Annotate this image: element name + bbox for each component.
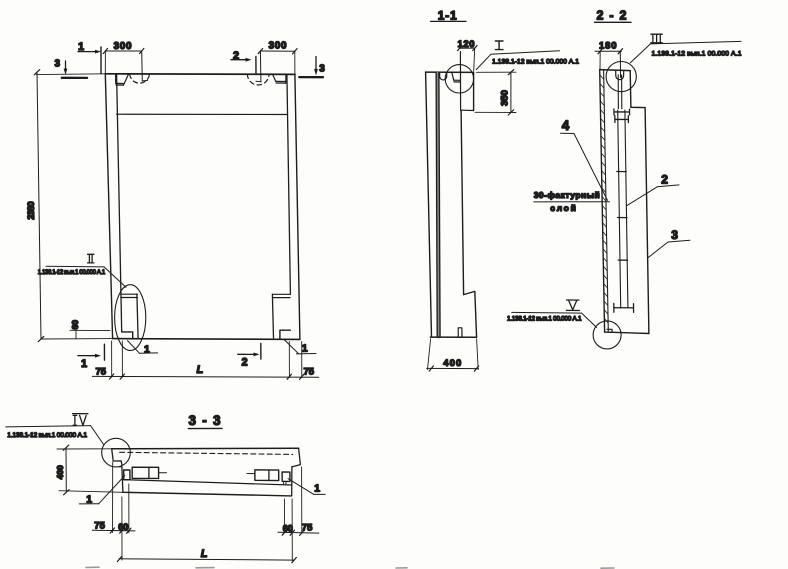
svg-text:L: L (197, 364, 204, 376)
svg-text:60: 60 (283, 523, 293, 533)
svg-text:1.138.1-12 вып.1 00.000 А.1: 1.138.1-12 вып.1 00.000 А.1 (507, 316, 582, 323)
svg-text:3: 3 (319, 64, 325, 75)
svg-text:300: 300 (269, 41, 287, 52)
svg-text:1: 1 (302, 342, 308, 354)
svg-text:60: 60 (70, 320, 80, 330)
svg-text:30-фактурный: 30-фактурный (534, 190, 600, 200)
svg-text:1.138.1-12 вып.1 00.000 А.1: 1.138.1-12 вып.1 00.000 А.1 (38, 270, 106, 276)
svg-text:2380: 2380 (26, 201, 37, 220)
svg-text:1: 1 (144, 343, 150, 355)
svg-text:2: 2 (661, 172, 668, 186)
svg-text:слой: слой (550, 203, 576, 213)
svg-text:1: 1 (314, 483, 320, 495)
svg-text:2: 2 (242, 357, 248, 369)
svg-text:1.138.1-12 вып.1 00.000 А.1: 1.138.1-12 вып.1 00.000 А.1 (652, 51, 742, 58)
svg-text:3: 3 (55, 59, 61, 70)
svg-text:1: 1 (81, 358, 87, 370)
svg-text:3-3: 3-3 (189, 413, 221, 428)
svg-text:300: 300 (114, 41, 132, 52)
svg-text:75: 75 (304, 367, 315, 378)
svg-text:350: 350 (500, 90, 511, 106)
svg-text:1-1: 1-1 (438, 8, 457, 22)
svg-text:2-2: 2-2 (597, 9, 627, 23)
svg-text:1.138.1-12 вып.1 00.000 А.1: 1.138.1-12 вып.1 00.000 А.1 (7, 432, 87, 439)
svg-text:400: 400 (55, 465, 65, 479)
svg-text:75: 75 (96, 367, 107, 378)
svg-text:4: 4 (562, 118, 570, 133)
svg-text:1: 1 (86, 493, 92, 505)
svg-text:3: 3 (671, 228, 678, 242)
svg-text:75: 75 (94, 520, 105, 531)
svg-text:60: 60 (118, 522, 128, 532)
svg-text:L: L (201, 548, 208, 560)
svg-text:400: 400 (443, 358, 461, 369)
svg-text:75: 75 (302, 523, 313, 534)
svg-text:1.138.1-12 вып.1 00.000 А.1: 1.138.1-12 вып.1 00.000 А.1 (492, 58, 579, 65)
